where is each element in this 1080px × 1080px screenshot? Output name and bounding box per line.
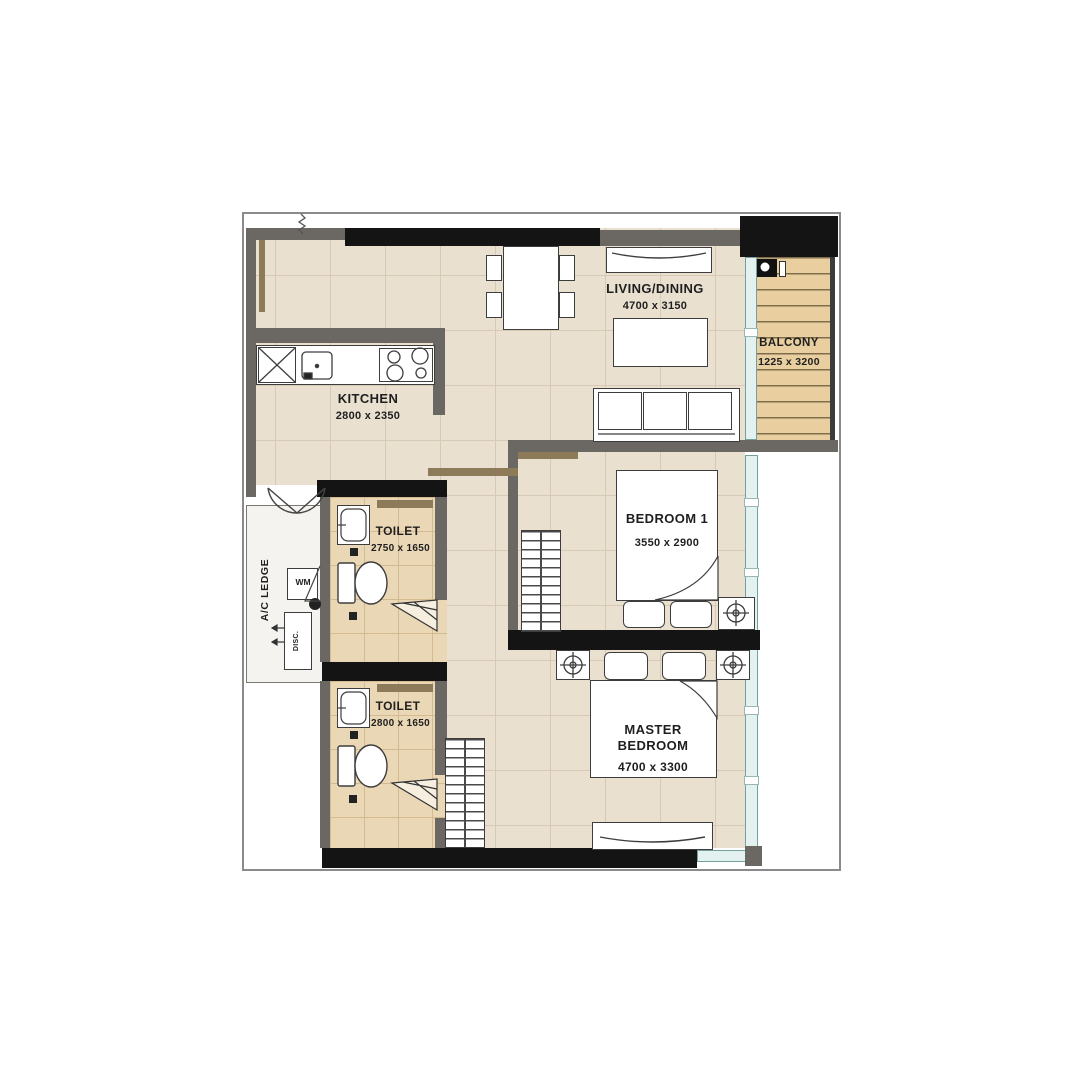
wall-top-living [600,230,745,246]
wall-bottom-black [322,848,697,868]
pillow [662,652,706,680]
floor-kitchen-lower [256,443,445,485]
label-washing-machine: WM [288,577,318,587]
wall-toilet2-left [320,681,330,848]
wall-kitchen-top [246,328,445,343]
dims-master: 4700 x 3300 [563,760,743,774]
label-toilet1: TOILET [348,524,448,538]
label-toilet2: TOILET [348,699,448,713]
label-living-dining: LIVING/DINING [560,281,750,296]
label-master-line1: MASTER [563,722,743,737]
kitchen-left-panel [259,240,265,312]
wall-entry-black [317,480,447,497]
wall-left [246,228,256,497]
dining-chair [486,292,502,318]
dims-bedroom1: 3550 x 2900 [577,537,757,549]
nightstand [718,597,755,630]
wall-balcony-top-block [740,216,838,257]
window-mullion [744,568,759,577]
label-kitchen: KITCHEN [288,391,448,406]
label-ac-ledge: A/C LEDGE [259,530,273,650]
wall-bedroom1-left [508,452,518,632]
wall-toilets-mid [322,662,447,681]
sofa-cushion [643,392,687,430]
dims-balcony: 1225 x 3200 [744,356,834,368]
wall-corner-bottom-right [745,846,762,866]
wall-toilet1-left [320,497,330,662]
sofa-cushion [688,392,732,430]
wardrobe-rail [540,531,542,631]
nightstand [556,650,590,680]
wall-top-left [246,228,350,240]
pillow [604,652,648,680]
toilet1-shelf [377,500,433,508]
wall-top-black [345,228,600,246]
entry-header-panel [428,468,518,476]
window-mullion [744,706,759,715]
dining-table [503,246,559,330]
nightstand [716,650,750,680]
tv-console-living [606,247,712,273]
dims-toilet1: 2750 x 1650 [348,543,453,554]
label-master-line2: BEDROOM [563,738,743,753]
tv-console-master [592,822,713,850]
label-ac-unit: DISC. [293,613,303,669]
dining-chair [486,255,502,281]
pillow [670,601,712,628]
toilet2-shelf [377,684,433,692]
dining-chair [559,255,575,281]
wall-bedroom-divider [508,630,760,650]
dims-toilet2: 2800 x 1650 [348,718,453,729]
window-mullion [744,328,758,337]
master-bottom-window [697,850,747,862]
kitchen-stove [379,348,433,382]
sofa-cushion [598,392,642,430]
balcony-fixture-bar [779,261,786,277]
balcony-light-fixture [757,259,777,277]
pillow [623,601,665,628]
coffee-table [613,318,708,367]
window-mullion [744,776,759,785]
label-bedroom1: BEDROOM 1 [577,511,757,526]
bedroom1-sliding-door [518,452,578,459]
bed-bedroom1 [616,470,718,601]
wardrobe-master [445,738,485,848]
wardrobe-bedroom1 [521,530,561,632]
label-balcony: BALCONY [746,337,832,349]
wardrobe-rail [464,739,466,847]
floor-plan-canvas: LIVING/DINING 4700 x 3150 KITCHEN 2800 x… [0,0,1080,1080]
kitchen-tall-cabinet [258,347,296,383]
window-mullion [744,498,759,507]
dims-kitchen: 2800 x 2350 [288,410,448,422]
dims-living-dining: 4700 x 3150 [560,300,750,312]
